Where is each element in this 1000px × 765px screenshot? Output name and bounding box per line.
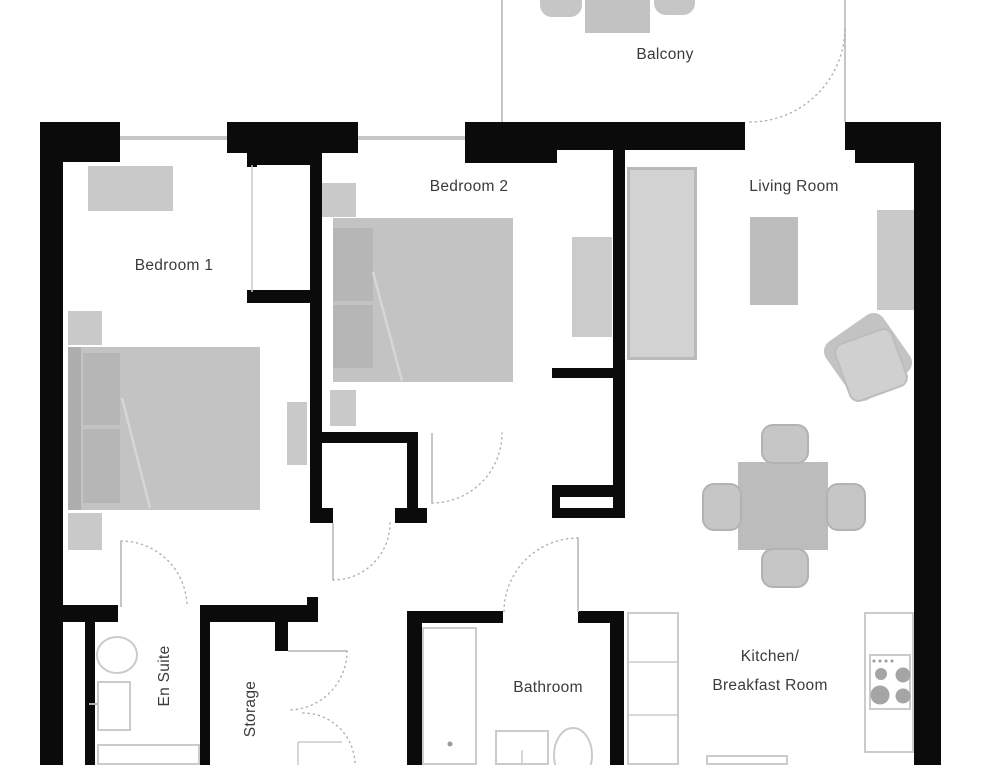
room-label-balcony: Balcony	[636, 46, 693, 64]
wall-outer-left	[40, 122, 63, 765]
wall-closet-foot	[395, 508, 427, 523]
ensuite-shower	[97, 744, 200, 765]
bedroom2-pillow-2	[333, 305, 373, 368]
room-label-storage: Storage	[242, 681, 260, 737]
window-bedroom1	[120, 136, 227, 140]
wall-storage-east-stub	[275, 622, 288, 651]
bathtub	[422, 627, 477, 765]
room-label-bedroom-2: Bedroom 2	[430, 178, 509, 196]
balcony-edge-east	[844, 0, 846, 48]
window-bedroom2	[358, 136, 465, 140]
storage-door-swing-arc	[288, 651, 347, 710]
wall-outer-right	[914, 122, 941, 765]
bathroom-toilet	[554, 728, 592, 765]
bathroom-sink	[495, 730, 549, 765]
bedroom2-door-swing-arc	[432, 433, 502, 503]
wall-hall-south-cap	[307, 597, 318, 605]
bedroom1-bed-headboard	[68, 347, 81, 510]
room-label-bedroom-1: Bedroom 1	[135, 257, 214, 275]
wall-divider-bedroom2-living	[613, 148, 625, 518]
bedroom2-pillow-1	[333, 228, 373, 301]
balcony-chair-right	[654, 0, 695, 15]
wall-top-bedroom2	[465, 122, 745, 150]
bedroom1-dresser	[88, 166, 173, 211]
floor-plan: Bedroom 1 Bedroom 2 Living Room Balcony …	[0, 0, 1000, 765]
stove-burner-panel	[869, 654, 911, 710]
kitchen-label-line-1: Kitchen/	[712, 642, 827, 671]
room-label-bathroom: Bathroom	[513, 679, 583, 697]
wall-hall-south-west	[63, 605, 118, 622]
bedroom1-hall-door-swing-arc	[333, 523, 390, 580]
living-sofa	[627, 167, 697, 360]
bedroom1-side-table	[287, 402, 307, 465]
living-coffee-table	[750, 217, 798, 305]
bedroom1-nightstand-top	[68, 311, 102, 345]
wall-divider-bedroom1-bedroom2	[310, 150, 322, 523]
wall-top-bedroom1	[227, 122, 358, 153]
wall-hall-south-east	[200, 605, 318, 622]
ensuite-sink	[97, 681, 131, 731]
dining-chair-north	[761, 424, 809, 464]
room-label-en-suite: En Suite	[156, 646, 174, 707]
balcony-edge-west	[501, 0, 503, 122]
kitchen-counter	[627, 612, 679, 765]
balcony-door-swing-arc	[750, 27, 845, 122]
dining-chair-west	[702, 483, 742, 531]
bedroom2-nightstand-2	[330, 390, 356, 426]
wall-pillar-top-left	[40, 122, 120, 162]
bathroom-door-swing-arc	[504, 538, 578, 612]
wall-niche-bottom	[247, 290, 313, 303]
wall-niche-stub	[247, 152, 257, 167]
ensuite-toilet	[97, 637, 137, 673]
balcony-table	[585, 0, 650, 33]
wall-bedroom2-closet-left	[552, 497, 560, 518]
kitchen-sink	[706, 755, 788, 765]
entry-door-swing-arc	[303, 713, 355, 765]
wall-bathroom-east	[610, 611, 624, 765]
wall-bedroom2-closet-stub	[552, 368, 613, 378]
room-label-kitchen-breakfast: Kitchen/ Breakfast Room	[712, 642, 827, 700]
kitchen-label-line-2: Breakfast Room	[712, 671, 827, 700]
wall-top-bedroom2-lip	[465, 150, 557, 163]
wall-bathroom-west	[407, 611, 422, 765]
living-tv-unit	[877, 210, 914, 310]
bedroom1-ensuite-door-swing-arc	[121, 541, 187, 607]
bedroom1-pillow-2	[83, 429, 120, 503]
balcony-chair-left	[540, 0, 582, 17]
bedroom2-nightstand	[322, 183, 356, 217]
dining-chair-east	[826, 483, 866, 531]
wall-divider-bedroom1-foot	[310, 508, 333, 523]
bedroom1-nightstand-bottom	[68, 513, 102, 550]
bedroom1-pillow-1	[83, 353, 120, 425]
room-label-living-room: Living Room	[749, 178, 838, 196]
wall-ensuite-east	[200, 622, 210, 765]
dining-chair-south	[761, 548, 809, 588]
wall-ensuite-shaft	[85, 622, 95, 765]
dining-table	[738, 462, 828, 550]
wall-closet-top	[318, 432, 418, 443]
bedroom2-dresser	[572, 237, 612, 337]
